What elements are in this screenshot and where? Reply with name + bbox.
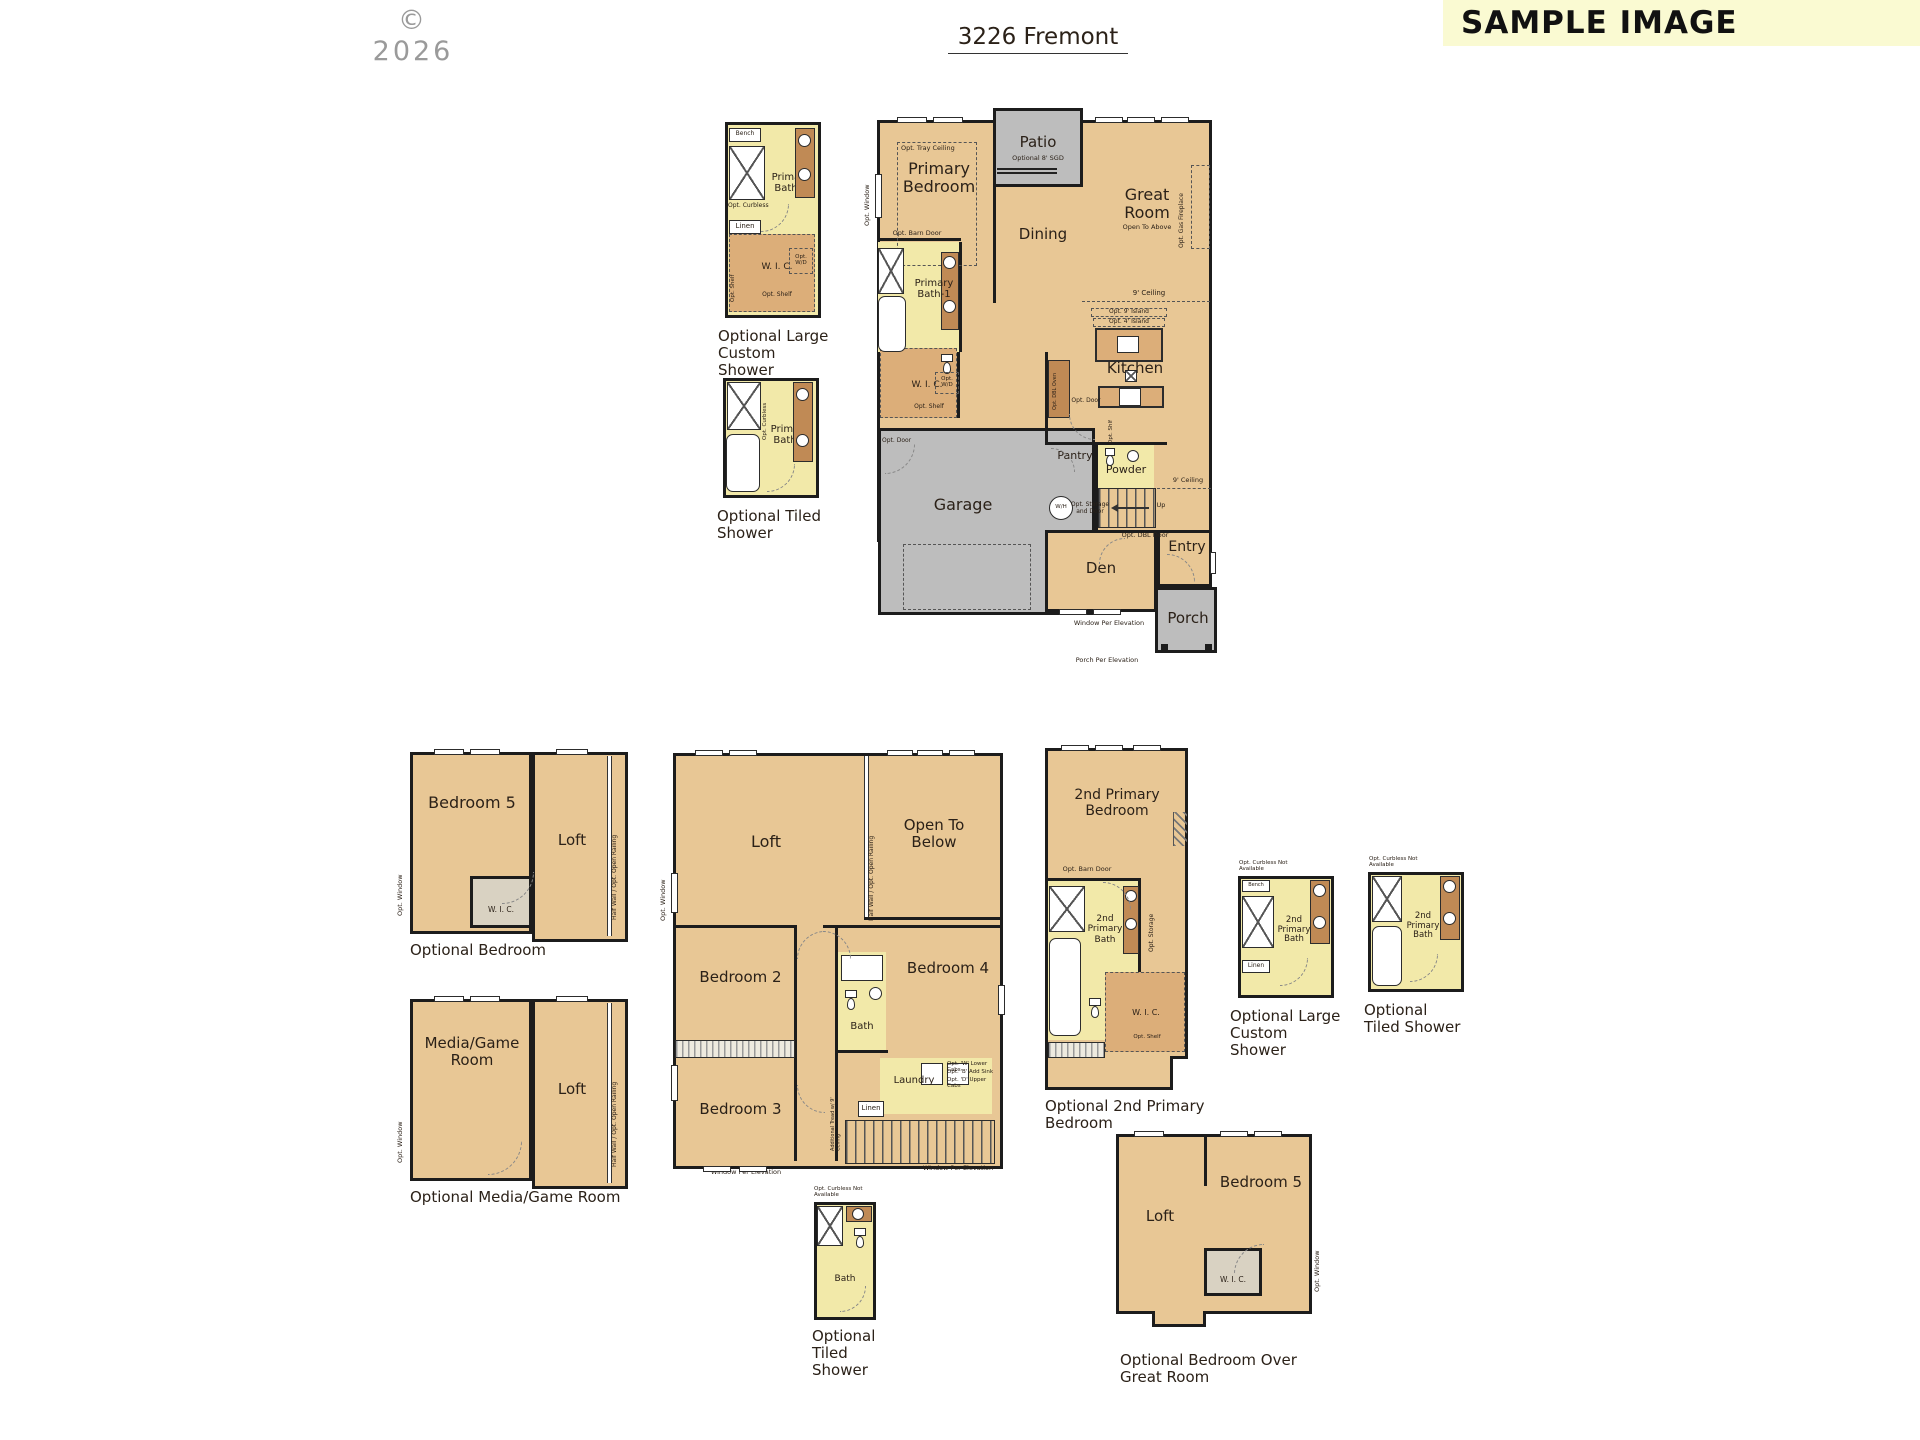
bottom-step bbox=[1152, 1311, 1206, 1327]
window bbox=[556, 749, 588, 755]
window bbox=[1133, 745, 1161, 751]
window bbox=[1095, 117, 1123, 123]
sink-fixture bbox=[796, 434, 809, 447]
den-label: Den bbox=[1069, 560, 1133, 577]
gas-fireplace-outline bbox=[1191, 165, 1210, 249]
opt-shelf-label: Opt. Shelf bbox=[1119, 1034, 1175, 1040]
sample-image-text: SAMPLE IMAGE bbox=[1461, 6, 1901, 41]
opt-door-label: Opt. Door bbox=[1069, 398, 1103, 405]
media-room-label: Media/Game Room bbox=[420, 1035, 524, 1069]
sink-fixture bbox=[852, 1208, 864, 1220]
dbl-oven-label: Opt. DBL Oven bbox=[1053, 370, 1058, 410]
window bbox=[1134, 1131, 1164, 1137]
floorplan-sheet: © 2026 3226 Fremont SAMPLE IMAGE Bench O… bbox=[0, 0, 1920, 1440]
window bbox=[897, 117, 927, 123]
toilet-fixture bbox=[1087, 998, 1103, 1018]
window bbox=[875, 174, 882, 218]
sink-fixture bbox=[796, 388, 809, 401]
porch-per-elevation-label: Porch Per Elevation bbox=[1063, 657, 1151, 664]
window bbox=[470, 749, 500, 755]
sink-fixture bbox=[943, 256, 956, 269]
wic-label: W. I. C. bbox=[472, 906, 530, 915]
toilet-fixture bbox=[1103, 448, 1117, 466]
sink-fixture bbox=[1443, 880, 1456, 893]
up-label: Up bbox=[1149, 502, 1173, 509]
closet-zigzag bbox=[1173, 812, 1187, 846]
bedroom5-label: Bedroom 5 bbox=[1214, 1174, 1308, 1191]
barn-door-label: Opt. Barn Door bbox=[885, 230, 949, 237]
loft-label: Loft bbox=[731, 833, 801, 851]
dbl-door-label: Opt. DBL Door bbox=[1119, 532, 1171, 539]
wic-label: W. I. C. bbox=[1206, 1276, 1260, 1285]
window bbox=[1059, 609, 1087, 615]
detail-caption: Optional Large Custom Shower bbox=[1230, 1008, 1342, 1059]
window bbox=[739, 1166, 767, 1172]
window bbox=[933, 117, 963, 123]
bedroom2-label: Bedroom 2 bbox=[693, 969, 788, 986]
toilet-fixture bbox=[852, 1228, 868, 1248]
opt-wd-label: Opt. W/D bbox=[789, 254, 813, 267]
opt-window-label: Opt. Window bbox=[1314, 1242, 1321, 1292]
toilet-fixture bbox=[939, 354, 955, 374]
opt-shelf-label: Opt. Shelf bbox=[749, 292, 805, 299]
bath-label: 2nd Primary Bath bbox=[1404, 912, 1442, 941]
shower-fixture bbox=[817, 1206, 843, 1246]
curbless-na-label: Opt. Curbless Not Available bbox=[1369, 856, 1429, 869]
opt-b-label: Opt. 'B' Add Sink bbox=[947, 1069, 997, 1075]
bath-label: Bath bbox=[843, 1021, 881, 1032]
window bbox=[671, 873, 678, 913]
sink-fixture bbox=[943, 300, 956, 313]
opt-window-label: Opt. Window bbox=[660, 871, 667, 921]
ceiling-9-stairs-label: 9' Ceiling bbox=[1161, 477, 1215, 484]
window bbox=[729, 750, 757, 756]
window bbox=[1254, 1131, 1282, 1137]
opt-window-label: Opt. Window bbox=[397, 866, 404, 916]
stairs bbox=[845, 1120, 995, 1164]
window bbox=[1210, 552, 1216, 574]
linen-label: Linen bbox=[729, 223, 761, 231]
sink-fixture bbox=[798, 134, 811, 147]
window bbox=[434, 996, 464, 1002]
gas-fireplace-label: Opt. Gas Fireplace bbox=[1179, 178, 1185, 248]
sink-fixture bbox=[1443, 912, 1456, 925]
window bbox=[1093, 609, 1121, 615]
detail-optional-large-custom-shower-2: Opt. Curbless Not Available Bench 2nd Pr… bbox=[1238, 860, 1353, 1055]
primary-bath-label: Primary Bath-1 bbox=[909, 278, 959, 301]
detail-caption: Optional Large Custom Shower bbox=[718, 328, 830, 379]
tray-ceiling-label: Opt. Tray Ceiling bbox=[901, 145, 977, 152]
shower-fixture bbox=[729, 146, 765, 200]
wall bbox=[1204, 1134, 1207, 1186]
shower-fixture bbox=[1372, 876, 1402, 922]
half-wall-label: Half Wall / Opt. Open Railing bbox=[612, 790, 618, 920]
window bbox=[1220, 1131, 1248, 1137]
bedroom4-label: Bedroom 4 bbox=[898, 960, 998, 977]
wall bbox=[823, 925, 1001, 928]
bath-label: Bath bbox=[820, 1274, 870, 1284]
window bbox=[556, 996, 588, 1002]
dishwasher-fixture bbox=[1125, 370, 1137, 382]
detail-optional-large-custom-shower-1: Bench Opt. Curbless Primary Bath-1 Linen… bbox=[725, 116, 840, 366]
sliding-glass-door bbox=[997, 168, 1057, 174]
optional-bedroom-over-great-room-plan: W. I. C. Loft Bedroom 5 Opt. Window Opti… bbox=[1116, 1126, 1336, 1381]
loft-label: Loft bbox=[544, 832, 600, 849]
wall bbox=[1048, 878, 1141, 881]
opt-wd-label: Opt. W/D bbox=[935, 376, 959, 389]
dining-label: Dining bbox=[1003, 226, 1083, 243]
window bbox=[1095, 745, 1123, 751]
garage-interior-dash bbox=[903, 544, 1031, 610]
shower-fixture bbox=[878, 248, 904, 294]
window bbox=[1127, 117, 1155, 123]
half-wall-label: Half Wall / Opt. Open Railing bbox=[612, 1037, 618, 1167]
porch-post bbox=[1205, 644, 1212, 651]
wic-label: W. I. C. bbox=[1117, 1008, 1175, 1017]
copyright-watermark: © 2026 bbox=[353, 6, 473, 68]
bedroom5-label: Bedroom 5 bbox=[426, 794, 518, 812]
stairs-arrow-line bbox=[1117, 507, 1149, 509]
linen-label: Linen bbox=[858, 1105, 884, 1113]
plan-title: 3226 Fremont bbox=[948, 24, 1128, 54]
window bbox=[887, 750, 913, 756]
bedroom-label: 2nd Primary Bedroom bbox=[1067, 788, 1167, 820]
ceiling-break-line bbox=[1082, 301, 1210, 302]
plan-caption: Optional Bedroom Over Great Room bbox=[1120, 1352, 1335, 1386]
laundry-label: Laundry bbox=[885, 1075, 943, 1086]
opt-shelf-label: Opt. Shelf bbox=[901, 404, 957, 411]
bench-label: Bench bbox=[729, 131, 761, 138]
detail-caption: Optional Tiled Shower bbox=[812, 1328, 907, 1379]
wall bbox=[1045, 442, 1167, 445]
tub-fixture bbox=[726, 434, 760, 492]
detail-caption: Optional Tiled Shower bbox=[1364, 1002, 1464, 1036]
ceiling-9-label: 9' Ceiling bbox=[1119, 290, 1179, 298]
bath-label: 2nd Primary Bath bbox=[1276, 916, 1312, 945]
bath-label: 2nd Primary Bath bbox=[1085, 914, 1125, 945]
opt-shlf-label: Opt. Shlf bbox=[1109, 412, 1115, 444]
sample-image-banner: SAMPLE IMAGE bbox=[1443, 0, 1920, 46]
sink-fixture bbox=[1313, 884, 1326, 897]
step-notch bbox=[1170, 1056, 1188, 1090]
tub-fixture bbox=[1049, 938, 1081, 1036]
toilet-fixture bbox=[843, 990, 859, 1010]
detail-optional-tiled-shower-3: Opt. Curbless Not Available Bath Optiona… bbox=[814, 1186, 914, 1371]
optional-bedroom-plan: W. I. C. Bedroom 5 Loft Opt. Window Half… bbox=[410, 746, 645, 971]
window bbox=[1061, 745, 1089, 751]
detail-caption: Optional Tiled Shower bbox=[717, 508, 822, 542]
wall bbox=[673, 925, 797, 928]
curbless-na-label: Opt. Curbless Not Available bbox=[1239, 860, 1299, 873]
ceiling-break-line bbox=[1157, 488, 1211, 489]
opt-window-label: Opt. Window bbox=[864, 174, 871, 226]
closet-strip bbox=[1048, 1042, 1105, 1058]
shower-fixture bbox=[1242, 896, 1274, 948]
wall bbox=[864, 917, 1001, 920]
window-per-elevation-label: Window Per Elevation bbox=[1065, 620, 1153, 627]
barn-door-label: Opt. Barn Door bbox=[1057, 866, 1117, 873]
opt-storage-door-label: Opt. Storage and Door bbox=[1067, 502, 1113, 516]
sink-fixture bbox=[1125, 918, 1137, 930]
window bbox=[695, 750, 723, 756]
closet-strip bbox=[675, 1040, 795, 1058]
shower-fixture bbox=[727, 382, 761, 430]
window bbox=[671, 1065, 678, 1101]
first-floor-plan: Patio Optional 8' SGD Opt. Tray Ceiling … bbox=[877, 108, 1225, 673]
window bbox=[434, 749, 464, 755]
curbless-na-label: Opt. Curbless Not Available bbox=[814, 1186, 878, 1199]
porch-label: Porch bbox=[1159, 610, 1217, 627]
stove-fixture bbox=[1119, 388, 1141, 406]
window bbox=[470, 996, 500, 1002]
sink-fixture bbox=[1313, 916, 1326, 929]
plan-caption: Optional Bedroom bbox=[410, 942, 600, 959]
sink-fixture bbox=[798, 168, 811, 181]
shower-fixture bbox=[1049, 886, 1085, 932]
sink-fixture bbox=[1127, 450, 1139, 462]
primary-bedroom-label: Primary Bedroom bbox=[893, 160, 985, 196]
opt-shelf-side-label: Opt. Shelf bbox=[731, 242, 737, 302]
open-to-below-label: Open To Below bbox=[891, 817, 977, 851]
tub-fixture bbox=[878, 296, 906, 352]
storage-label: Opt. Storage bbox=[1149, 886, 1155, 952]
garage-label: Garage bbox=[921, 496, 1005, 514]
sgd-label: Optional 8' SGD bbox=[995, 155, 1081, 162]
window bbox=[998, 985, 1005, 1015]
porch-post bbox=[1161, 644, 1168, 651]
island9-label: Opt. 9' Island bbox=[1091, 308, 1167, 317]
wall bbox=[993, 187, 996, 303]
patio-label: Patio bbox=[995, 134, 1081, 151]
detail-optional-tiled-shower-1: Opt. Curbless Primary Bath-1 Optional Ti… bbox=[723, 374, 833, 544]
window bbox=[1161, 117, 1189, 123]
opt-window-label: Opt. Window bbox=[397, 1113, 404, 1163]
plan-caption: Optional Media/Game Room bbox=[410, 1189, 640, 1206]
loft-label: Loft bbox=[1128, 1208, 1192, 1225]
linen-label: Linen bbox=[1242, 963, 1270, 970]
second-floor-plan: Linen Loft Opt. Window Half Wall / Opt. … bbox=[673, 745, 1018, 1185]
optional-media-game-room-plan: Media/Game Room Loft Opt. Window Half Wa… bbox=[410, 993, 645, 1218]
island4-label: Opt. 4' Island bbox=[1093, 318, 1165, 327]
opt-d-label: Opt. 'D' Upper Cabs bbox=[947, 1077, 997, 1090]
half-wall-label: Half Wall / Opt. Open Railing bbox=[869, 793, 875, 921]
optional-2nd-primary-plan: 2nd Primary Bedroom Opt. Barn Door 2nd P… bbox=[1045, 740, 1220, 1125]
sink-fixture bbox=[869, 987, 882, 1000]
window bbox=[917, 750, 943, 756]
bedroom3-label: Bedroom 3 bbox=[693, 1101, 788, 1118]
window-per-elevation-label: Window Per Elevation bbox=[913, 1165, 1003, 1172]
additional-tread-label: Additional Tread w/ 9' Ceiling bbox=[831, 1087, 842, 1151]
bench-label: Bench bbox=[1242, 883, 1270, 889]
window bbox=[703, 1166, 731, 1172]
tub-fixture bbox=[1372, 926, 1402, 986]
island-sink bbox=[1117, 336, 1139, 353]
wall bbox=[838, 1050, 888, 1053]
detail-optional-tiled-shower-2: Opt. Curbless Not Available 2nd Primary … bbox=[1368, 856, 1483, 1051]
loft-label: Loft bbox=[544, 1081, 600, 1098]
window bbox=[949, 750, 975, 756]
